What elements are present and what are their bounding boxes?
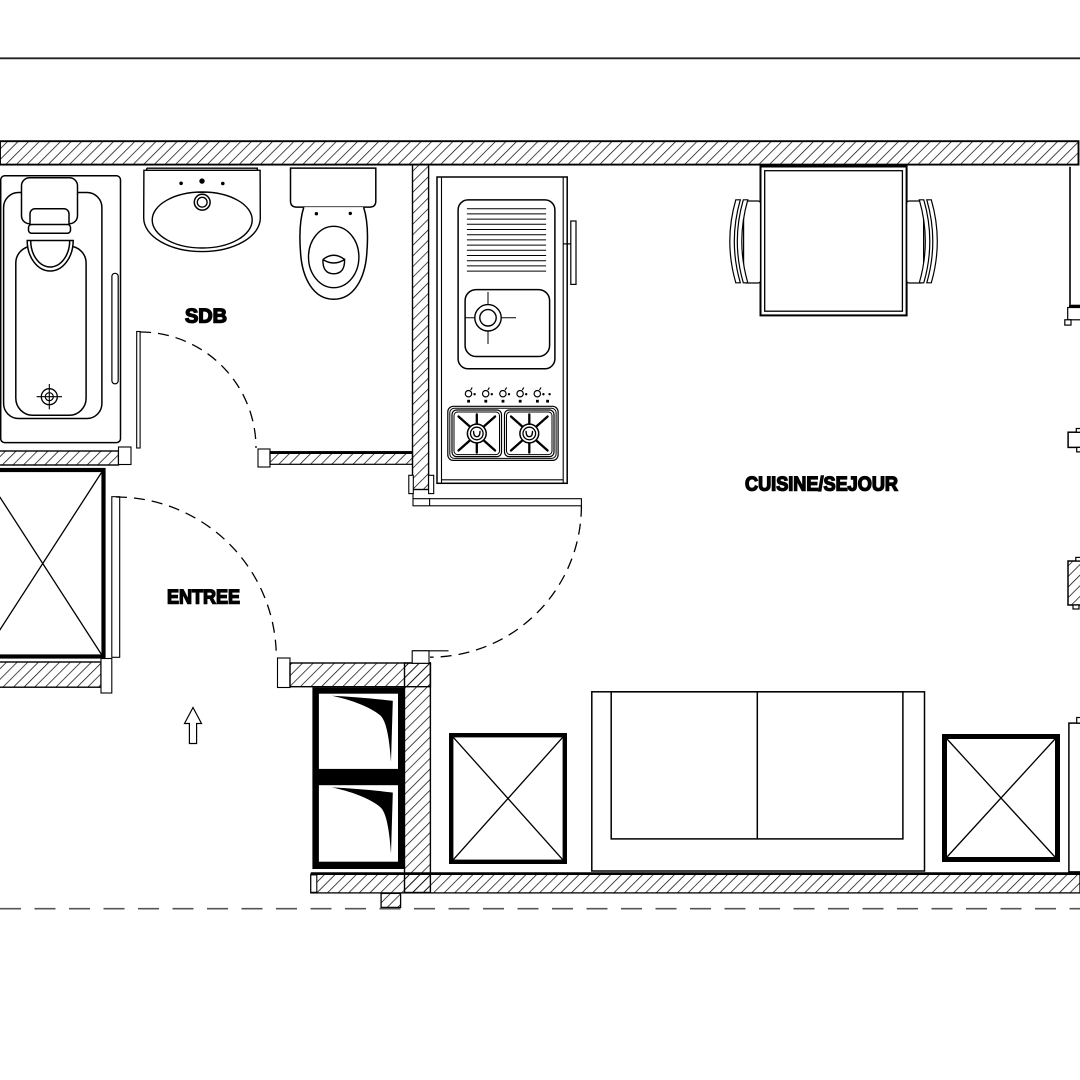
svg-text:CUISINE/SEJOUR: CUISINE/SEJOUR: [745, 474, 898, 496]
svg-text:SDB: SDB: [185, 306, 227, 328]
svg-text:ENTREE: ENTREE: [167, 587, 240, 609]
